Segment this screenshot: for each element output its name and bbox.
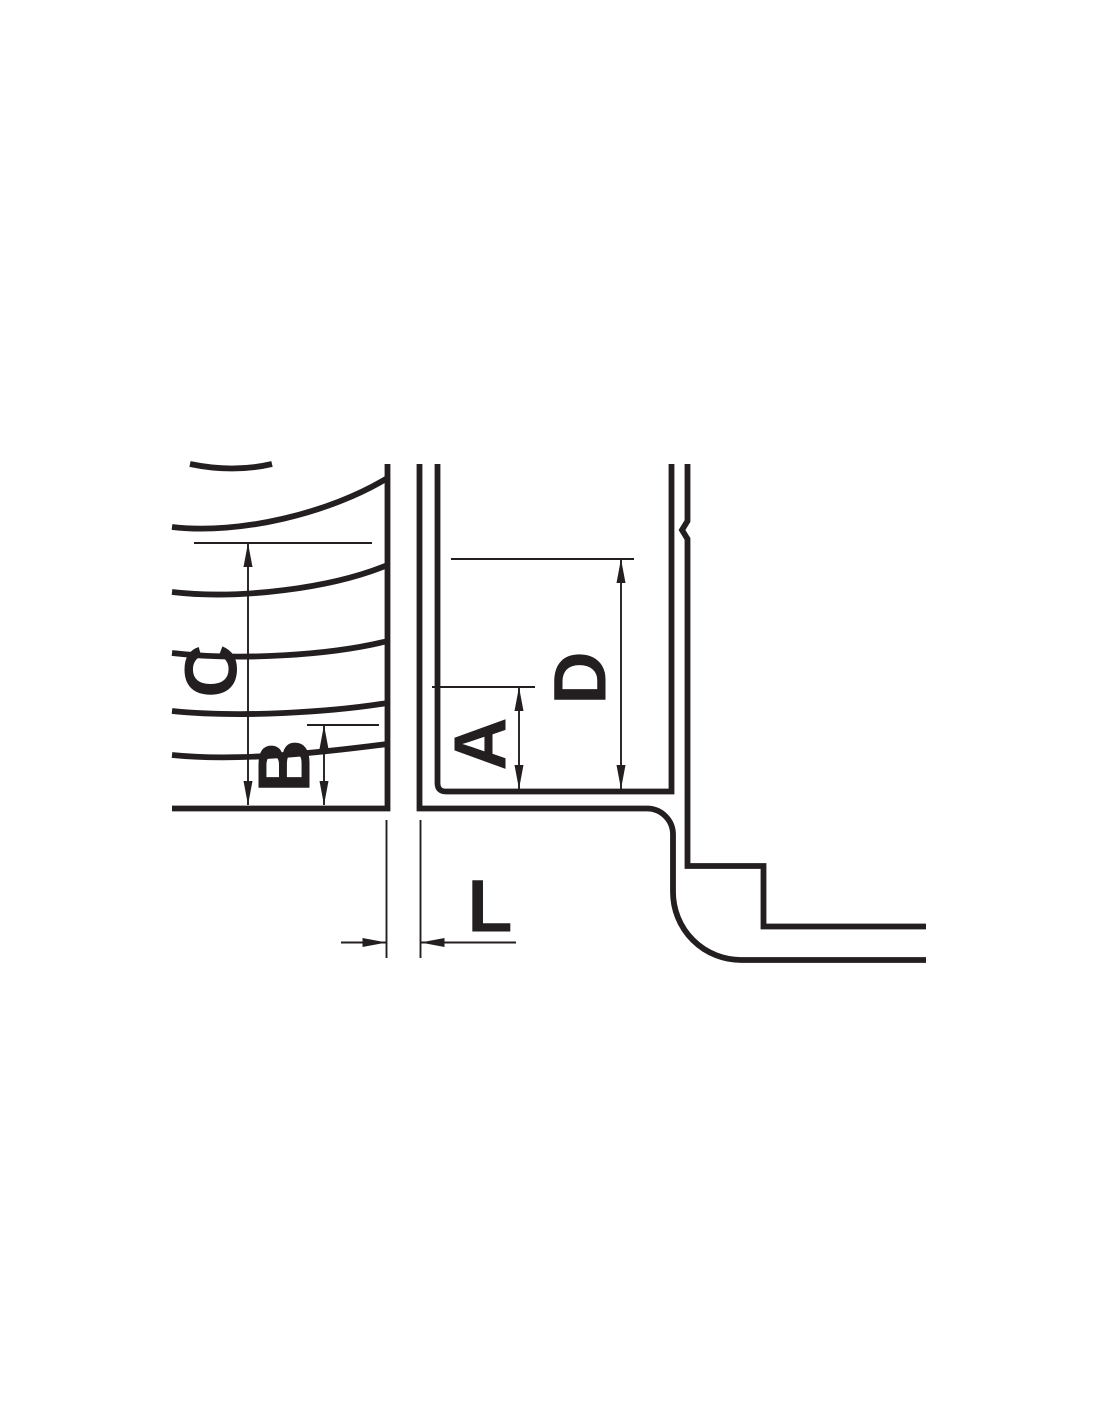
technical-drawing-page: C B A D L — [0, 0, 1100, 1422]
dimension-A-label: A — [439, 717, 522, 770]
dimension-D-arrow-up — [617, 559, 626, 583]
dimension-A-arrow-up — [515, 687, 524, 711]
dimension-A: A — [432, 687, 535, 789]
dimension-L: L — [341, 820, 516, 958]
dimension-B: B — [243, 725, 380, 805]
fitting-outer-wall-right-stepped — [682, 464, 926, 927]
dimension-B-label: B — [243, 739, 326, 792]
thread-curve-4 — [172, 703, 388, 714]
dimension-L-arrow-right — [363, 938, 387, 947]
thread-curve-2 — [172, 565, 388, 594]
dimension-L-label: L — [467, 865, 512, 948]
thread-curve-top-partial — [190, 464, 272, 469]
dimension-D-arrow-down — [617, 765, 626, 789]
dimension-D-label: D — [539, 651, 622, 704]
dimension-C-label: C — [170, 644, 253, 697]
technical-drawing-canvas: C B A D L — [0, 0, 1100, 1422]
thread-curve-1 — [172, 478, 388, 529]
dimension-C-arrow-up — [244, 543, 253, 567]
dimension-L-arrow-left — [421, 938, 445, 947]
